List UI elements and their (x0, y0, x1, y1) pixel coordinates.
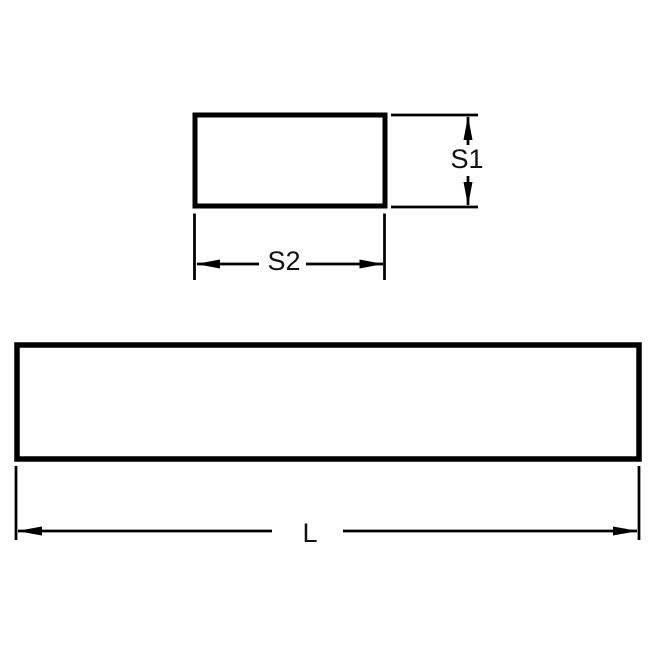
side-view: L (16, 345, 639, 548)
l-dimension: L (16, 466, 639, 548)
arrow-left-icon (17, 527, 42, 536)
arrow-left-icon (196, 260, 220, 269)
side-view-rect (17, 345, 639, 459)
s1-dimension: S1 (391, 115, 484, 207)
technical-drawing: S1 S2 L (0, 0, 670, 670)
drawing-canvas: S1 S2 L (0, 0, 670, 670)
l-label: L (302, 518, 317, 548)
arrow-up-icon (464, 116, 473, 140)
cross-section-view: S1 S2 (195, 115, 484, 280)
arrow-right-icon (360, 260, 384, 269)
s1-label: S1 (450, 144, 483, 174)
s2-label: S2 (267, 246, 300, 276)
arrow-right-icon (613, 527, 638, 536)
cross-section-rect (195, 115, 385, 206)
arrow-down-icon (464, 182, 473, 206)
s2-dimension: S2 (195, 214, 385, 281)
